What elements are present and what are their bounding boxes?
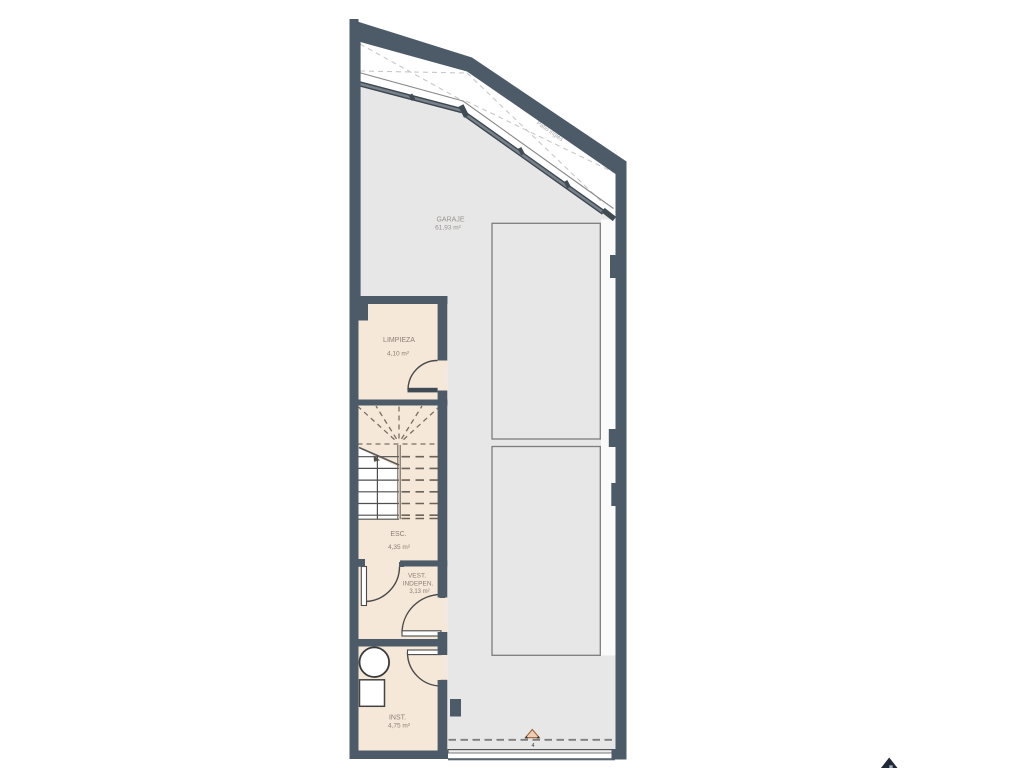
svg-text:4,10 m²: 4,10 m²	[387, 351, 410, 358]
svg-text:ESC.: ESC.	[390, 531, 406, 538]
svg-text:VEST.: VEST.	[408, 573, 426, 580]
svg-text:INST.: INST.	[389, 715, 406, 722]
svg-text:GARAJE: GARAJE	[436, 217, 464, 224]
svg-text:4: 4	[531, 743, 534, 749]
svg-text:4,75 m²: 4,75 m²	[388, 723, 411, 730]
svg-text:61,93 m²: 61,93 m²	[435, 225, 461, 232]
svg-text:4,35 m²: 4,35 m²	[388, 544, 411, 551]
svg-text:LIMPIEZA: LIMPIEZA	[383, 337, 415, 344]
svg-text:3,13 m²: 3,13 m²	[409, 589, 429, 595]
svg-text:INDEPEN.: INDEPEN.	[403, 581, 434, 588]
